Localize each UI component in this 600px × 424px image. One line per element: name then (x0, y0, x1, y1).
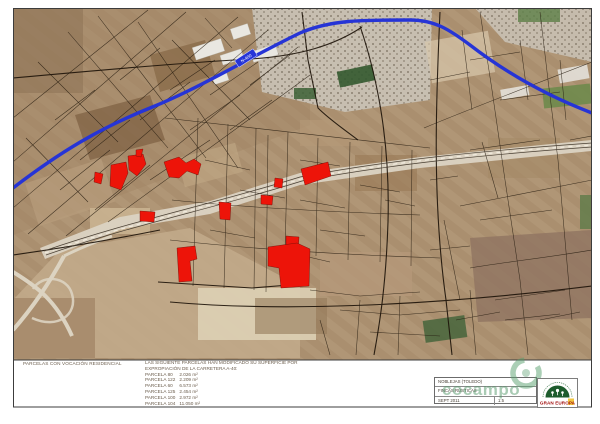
title-scale: 1:5 (494, 397, 536, 405)
title-type: FINCAS RÚSTICAS (435, 387, 536, 396)
parcel-area: 11.050 m² (179, 401, 200, 407)
red-parcel (219, 202, 231, 220)
footer-left-label: PARCELAS CON VOCACIÓN RESIDENCIAL (23, 361, 143, 366)
title-block: NOBLEJAS (TOLEDO) FINCAS RÚSTICAS SEPT 2… (434, 377, 537, 404)
parcel-row: PARCELA 104 11.050 m² (145, 401, 375, 407)
gran-europa-logo: GRAN EUROPA (537, 378, 578, 408)
title-location: NOBLEJAS (TOLEDO) (435, 378, 536, 387)
red-parcel (274, 178, 283, 188)
gran-europa-wordmark: GRAN EUROPA (540, 401, 576, 406)
footer-note: LAS SIGUIENTE PARCELAS HAN MODIFICADO SU… (145, 360, 375, 406)
red-parcel (140, 211, 155, 222)
red-parcel (261, 195, 273, 205)
gran-europa-dome-icon (543, 383, 572, 398)
title-date: SEPT 2011 (435, 397, 494, 405)
parcel-label: PARCELA 104 (145, 401, 178, 407)
map-sheet: N-400 PARCELAS CON VOCACIÓN RESIDENCIAL … (0, 0, 600, 424)
